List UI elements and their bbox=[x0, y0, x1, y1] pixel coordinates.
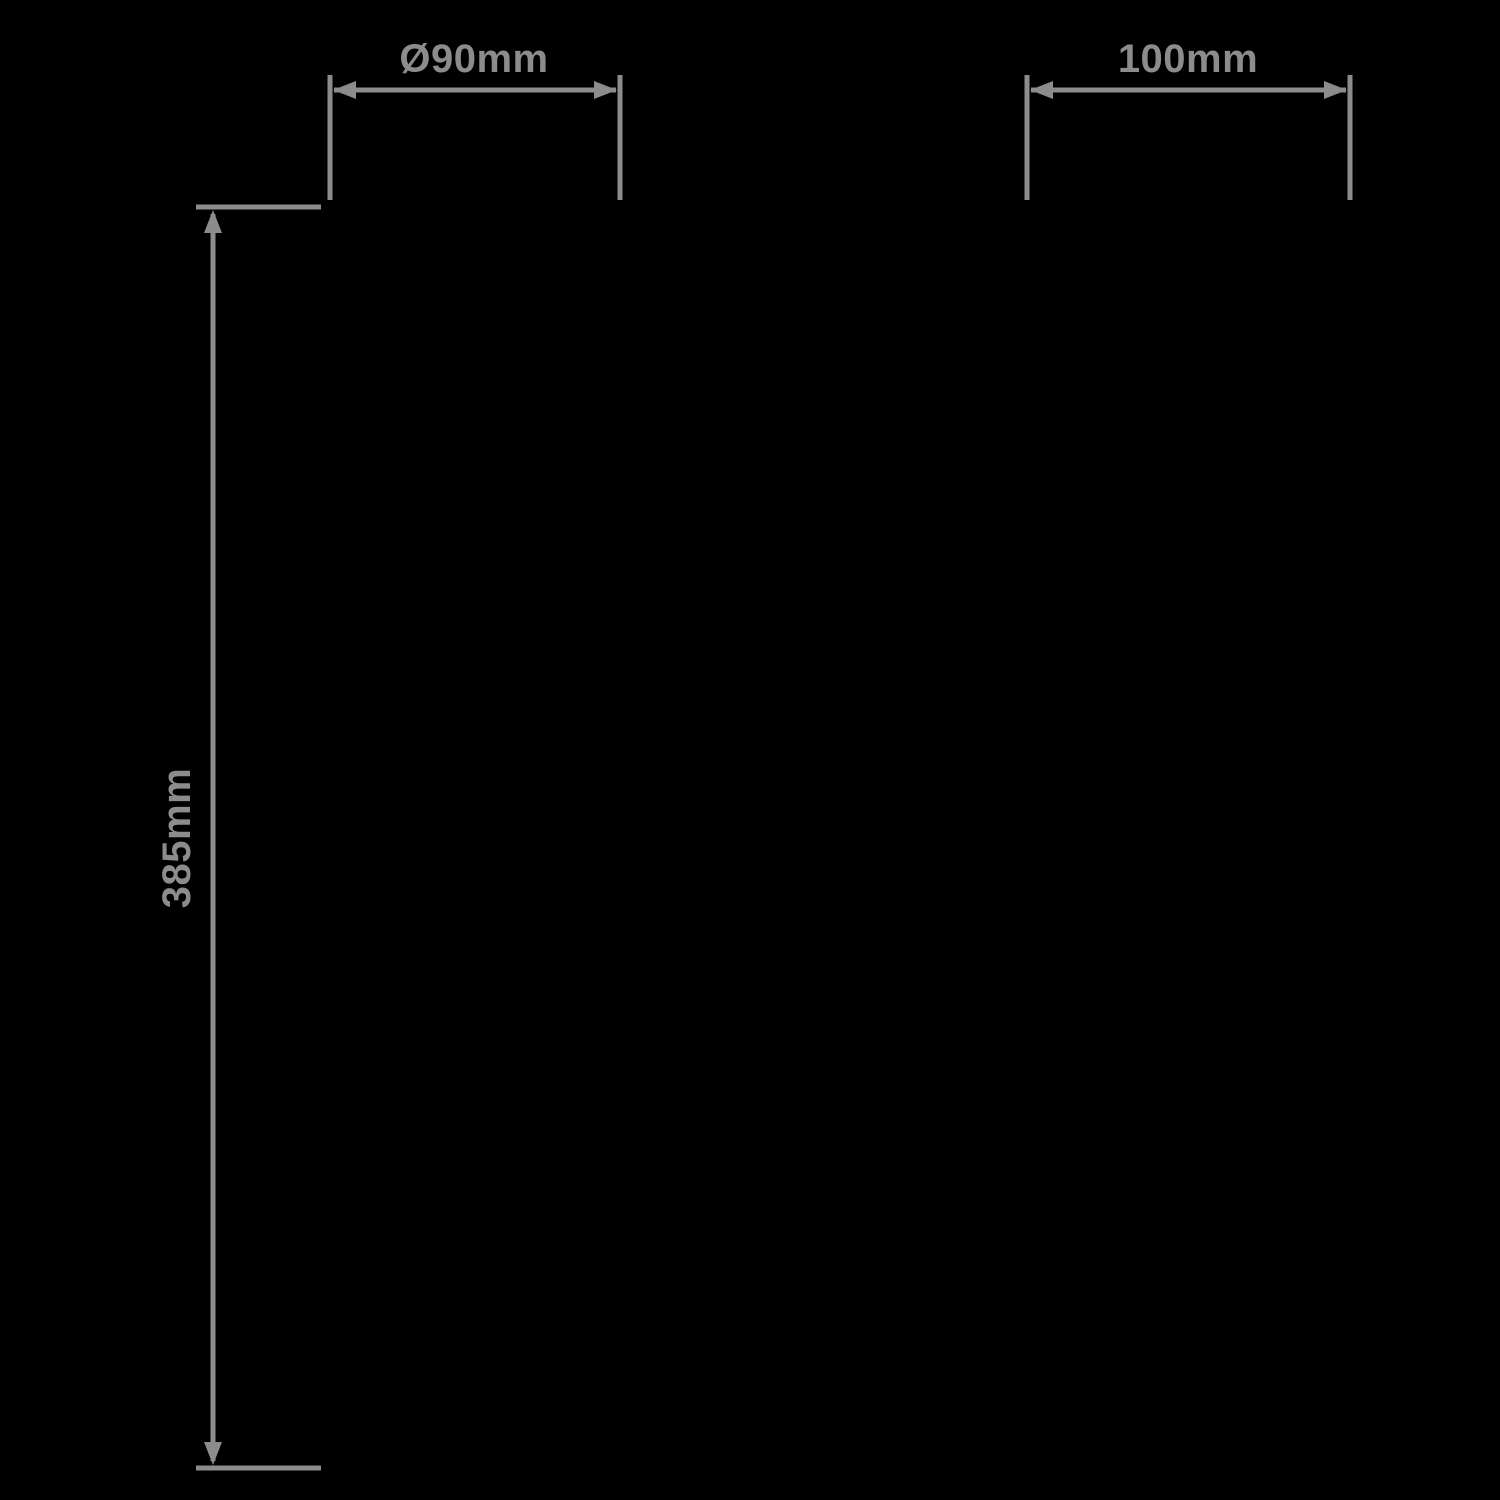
height-dimension-label: 385mm bbox=[155, 768, 199, 908]
diameter-dimension: Ø90mm bbox=[330, 37, 620, 200]
projection-dimension: 100mm bbox=[1027, 37, 1350, 200]
projection-arrowhead-left-icon bbox=[1030, 81, 1053, 99]
projection-arrowhead-right-icon bbox=[1324, 81, 1347, 99]
diameter-arrowhead-right-icon bbox=[594, 81, 617, 99]
projection-dimension-label: 100mm bbox=[1118, 37, 1258, 81]
height-dimension: 385mm bbox=[155, 207, 321, 1468]
diameter-arrowhead-left-icon bbox=[333, 81, 356, 99]
diameter-dimension-label: Ø90mm bbox=[399, 37, 548, 81]
height-arrowhead-bottom-icon bbox=[204, 1442, 222, 1465]
diagram-canvas: Ø90mm 100mm 385mm bbox=[0, 0, 1500, 1500]
height-arrowhead-top-icon bbox=[204, 210, 222, 233]
